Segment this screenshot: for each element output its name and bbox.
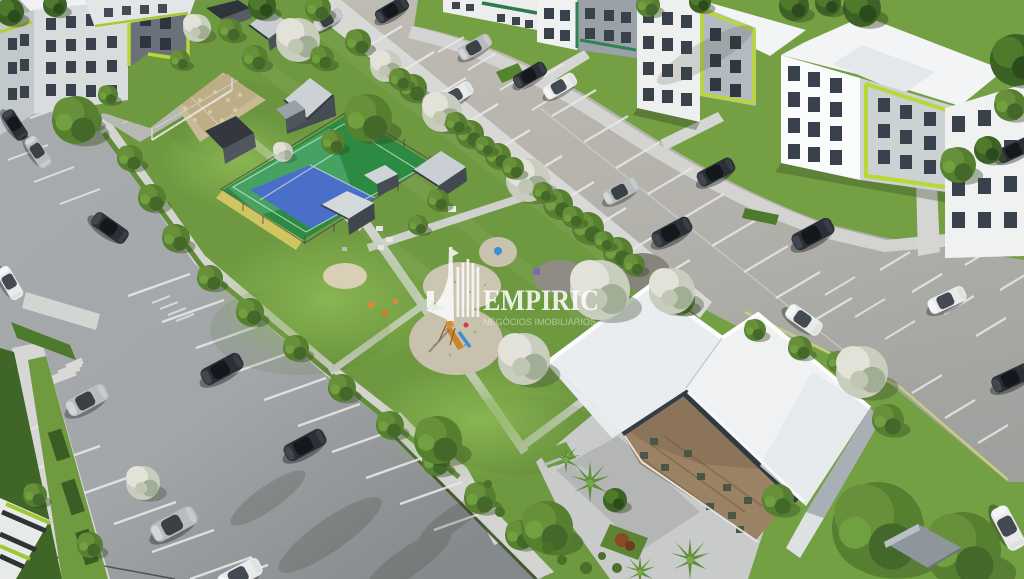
svg-text:EMPIRIC: EMPIRIC xyxy=(483,284,599,317)
svg-text:NEGÓCIOS IMOBILIÁRIOS: NEGÓCIOS IMOBILIÁRIOS xyxy=(483,317,596,328)
